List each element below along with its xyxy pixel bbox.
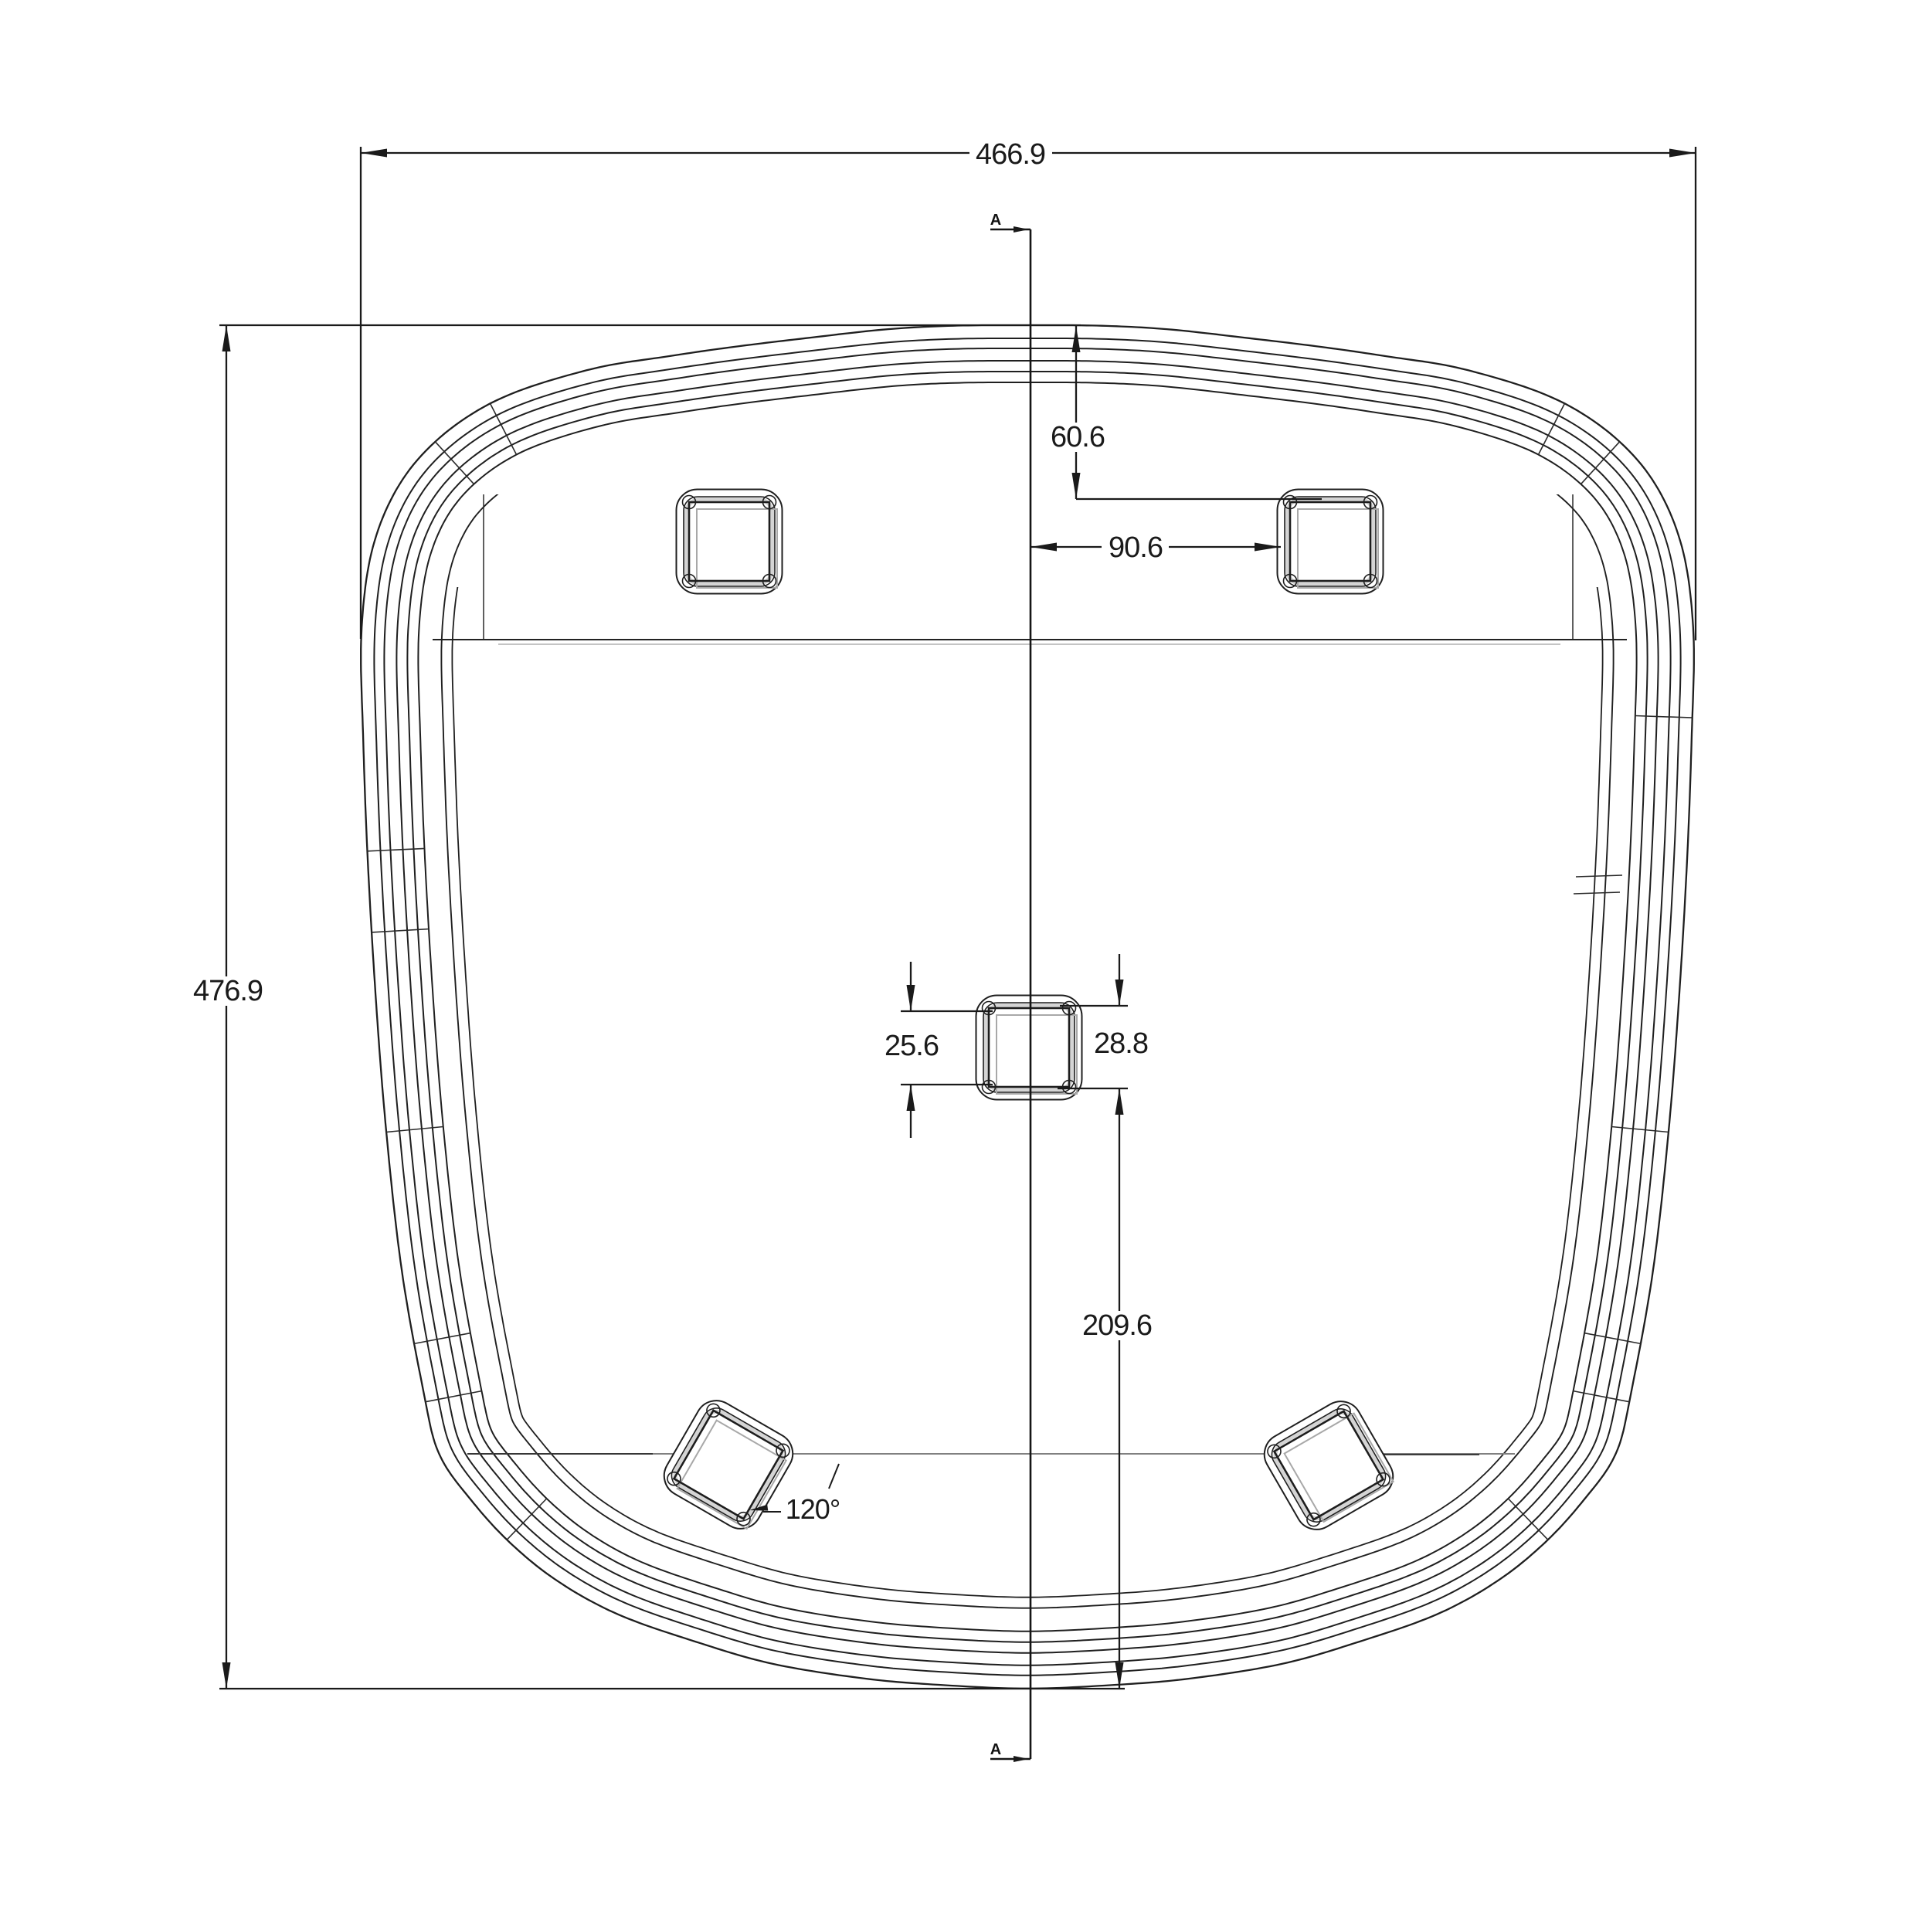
svg-text:120°: 120° bbox=[786, 1493, 840, 1525]
svg-text:466.9: 466.9 bbox=[976, 138, 1045, 171]
svg-text:28.8: 28.8 bbox=[1094, 1027, 1148, 1060]
svg-text:A: A bbox=[990, 1741, 1001, 1758]
svg-text:90.6: 90.6 bbox=[1109, 531, 1163, 564]
svg-text:25.6: 25.6 bbox=[885, 1030, 939, 1062]
svg-text:A: A bbox=[990, 212, 1001, 229]
svg-text:476.9: 476.9 bbox=[193, 975, 263, 1007]
svg-text:60.6: 60.6 bbox=[1051, 421, 1105, 453]
svg-text:209.6: 209.6 bbox=[1082, 1309, 1152, 1342]
